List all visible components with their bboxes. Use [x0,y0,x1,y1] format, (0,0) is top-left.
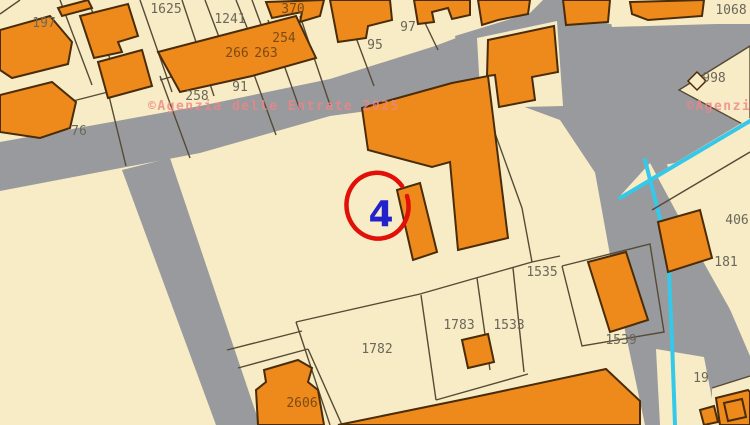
parcel-label-266: 266 [225,46,248,61]
parcel-label-1625: 1625 [150,2,181,17]
parcel-label-95: 95 [367,38,383,53]
parcel-label-1783: 1783 [443,318,474,333]
parcel-label-19: 19 [693,371,709,386]
parcel-label-2606: 2606 [286,396,317,411]
parcel-label-1539: 1539 [605,333,636,348]
building [630,0,704,20]
parcel-label-998: 998 [702,71,725,86]
parcel-label-181: 181 [714,255,737,270]
parcel-label-97: 97 [400,20,416,35]
cadastral-map: 197 1625 1241 370 254 266 263 91 95 97 2… [0,0,750,425]
parcel-label-1782: 1782 [361,342,392,357]
parcel-label-1533: 1533 [493,318,524,333]
map-viewport[interactable]: 197 1625 1241 370 254 266 263 91 95 97 2… [0,0,750,425]
parcel-label-76: 76 [71,124,87,139]
parcel-label-406: 406 [725,213,748,228]
parcel-label-370: 370 [281,2,304,17]
watermark-left: ©Agenzia delle Entrate 2025 [148,99,400,114]
building [462,334,494,368]
building [563,0,610,25]
parcel-label-1535: 1535 [526,265,557,280]
parcel-label-254: 254 [272,31,296,46]
parcel-label-1068: 1068 [715,3,746,18]
watermark-right: ©Agenzia delle Entrate 2025 [686,99,750,114]
parcel-label-91: 91 [232,80,248,95]
marker-number: 4 [368,194,393,235]
parcel-label-1241: 1241 [214,12,245,27]
building [700,406,718,425]
parcel-label-263: 263 [254,46,277,61]
parcel-label-197: 197 [32,16,55,31]
building [724,399,746,421]
